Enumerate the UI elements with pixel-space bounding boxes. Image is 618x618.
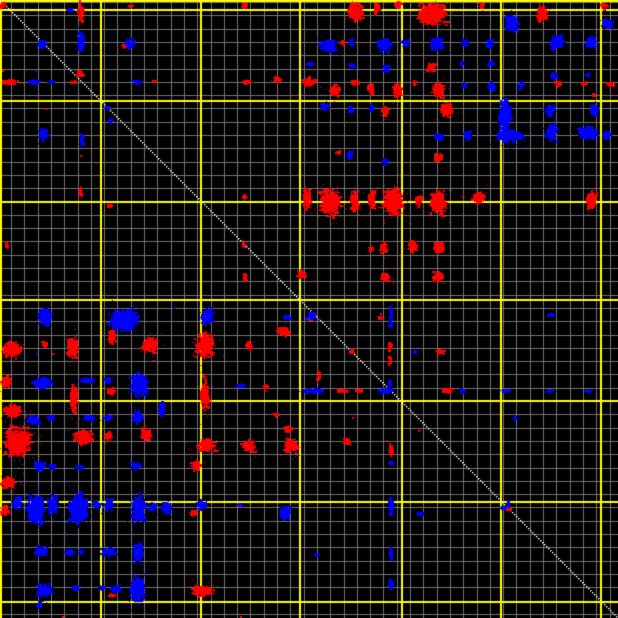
dotplot-matrix: [0, 0, 618, 618]
dotplot-canvas: [0, 0, 618, 618]
